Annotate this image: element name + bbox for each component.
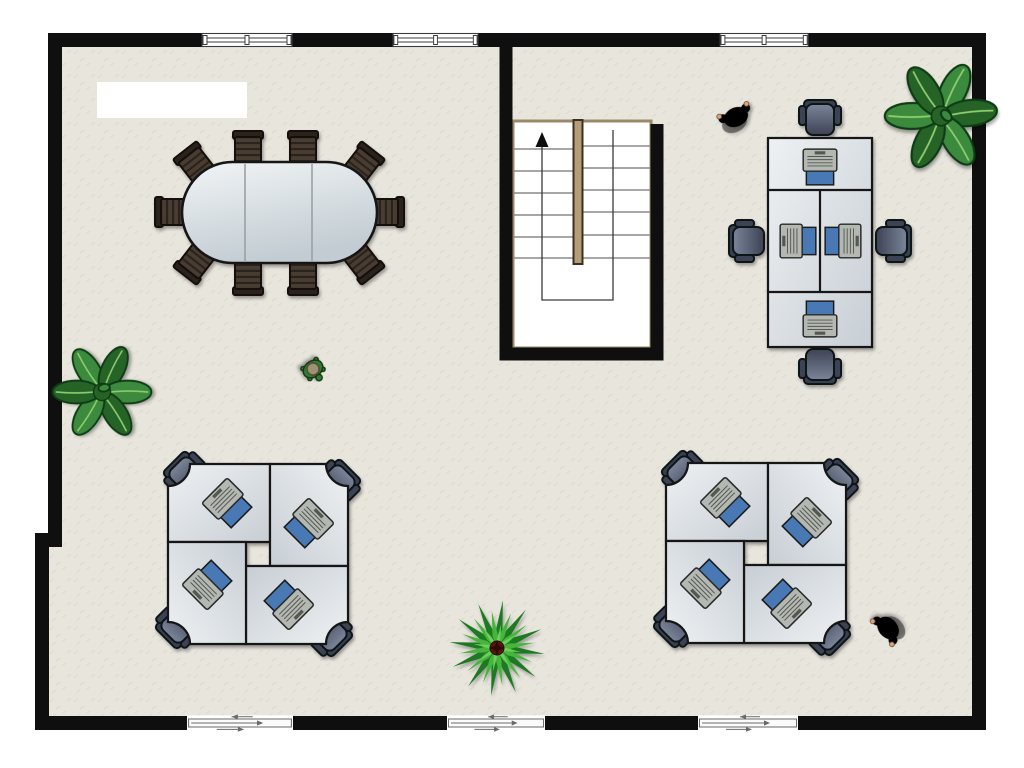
- floor-plan-canvas: [0, 0, 1024, 768]
- conference-table: [182, 162, 377, 263]
- floor-plan-svg: [0, 0, 1024, 768]
- label-placeholder: [97, 82, 247, 118]
- window-3: [720, 34, 808, 47]
- sliding-door-3: [698, 714, 798, 731]
- window-1: [202, 34, 292, 47]
- stair-divider: [574, 120, 583, 264]
- room-label: [97, 82, 247, 118]
- sliding-door-2: [447, 714, 545, 731]
- sliding-door-1: [187, 714, 293, 731]
- window-2: [393, 34, 478, 47]
